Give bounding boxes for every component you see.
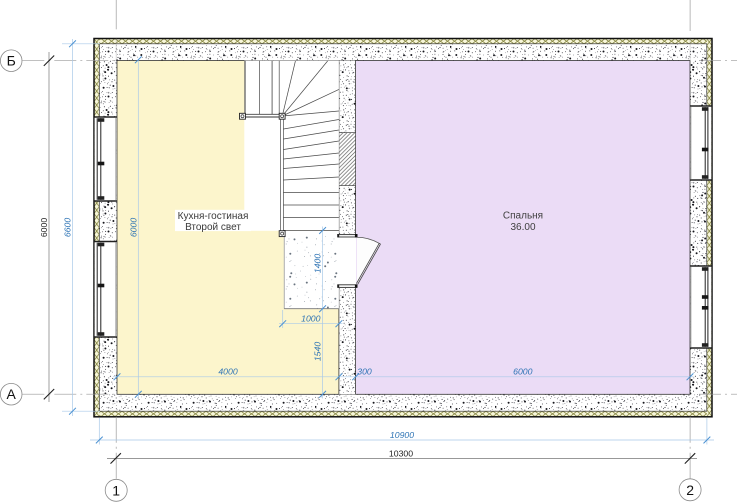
- svg-text:Второй свет: Второй свет: [185, 222, 241, 233]
- svg-text:300: 300: [357, 366, 372, 376]
- svg-text:А: А: [7, 386, 17, 402]
- svg-text:1: 1: [112, 482, 120, 498]
- svg-text:10300: 10300: [389, 449, 413, 459]
- svg-text:1540: 1540: [313, 342, 323, 361]
- svg-text:6600: 6600: [63, 218, 73, 237]
- svg-text:1400: 1400: [313, 254, 323, 273]
- svg-text:Спальня: Спальня: [503, 211, 543, 222]
- svg-text:Кухня-гостиная: Кухня-гостиная: [178, 211, 249, 222]
- svg-text:4000: 4000: [218, 366, 237, 376]
- svg-text:36.00: 36.00: [510, 222, 535, 233]
- svg-text:6000: 6000: [128, 218, 138, 237]
- svg-text:Б: Б: [7, 53, 16, 69]
- svg-text:1000: 1000: [301, 313, 320, 323]
- svg-text:10900: 10900: [390, 430, 414, 440]
- svg-text:6000: 6000: [513, 366, 532, 376]
- svg-text:2: 2: [686, 482, 694, 498]
- svg-text:6000: 6000: [39, 218, 49, 237]
